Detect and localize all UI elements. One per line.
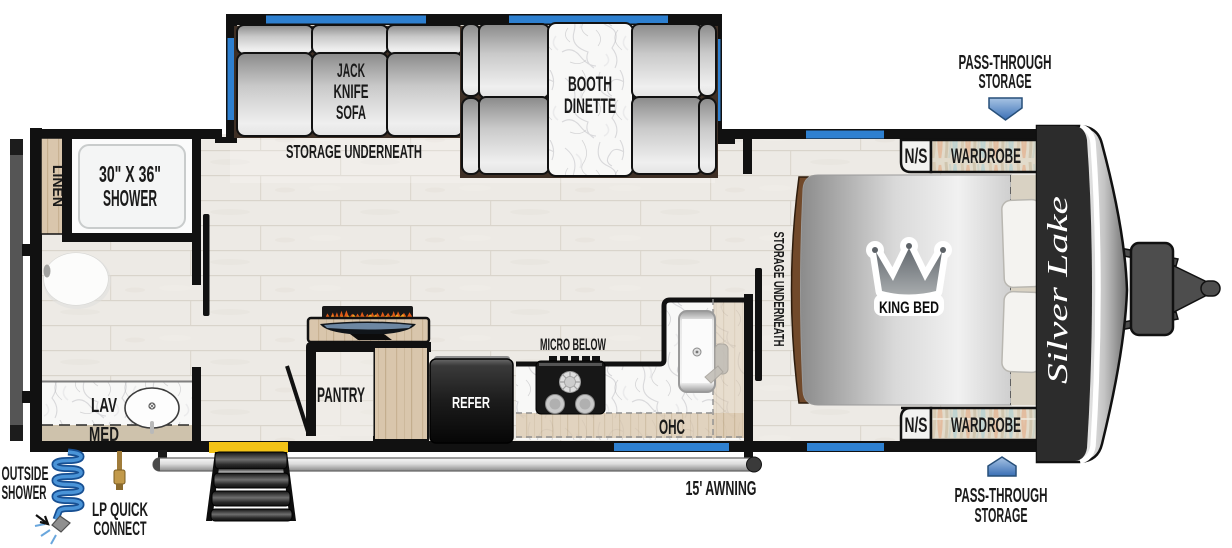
svg-text:Silver Lake: Silver Lake [1043,196,1074,384]
svg-text:JACK: JACK [337,61,365,82]
svg-text:STORAGE UNDERNEATH: STORAGE UNDERNEATH [286,142,422,162]
svg-text:LAV: LAV [91,395,117,417]
svg-text:WARDROBE: WARDROBE [951,145,1021,168]
svg-text:MICRO BELOW: MICRO BELOW [540,335,607,354]
svg-text:DINETTE: DINETTE [564,95,616,118]
svg-text:30" X 36": 30" X 36" [99,161,161,187]
svg-text:MED: MED [89,424,119,446]
svg-text:SHOWER: SHOWER [103,185,157,211]
svg-text:BOOTH: BOOTH [568,73,612,96]
svg-text:STORAGE UNDERNEATH: STORAGE UNDERNEATH [770,232,787,347]
svg-text:SOFA: SOFA [336,103,366,124]
svg-text:15' AWNING: 15' AWNING [686,478,757,500]
svg-text:OHC: OHC [659,416,685,439]
svg-text:REFER: REFER [452,395,490,412]
svg-text:KING BED: KING BED [879,298,939,317]
svg-text:WARDROBE: WARDROBE [951,414,1021,437]
svg-text:PANTRY: PANTRY [317,384,365,407]
svg-text:STORAGE: STORAGE [979,71,1032,93]
svg-text:PASS-THROUGH: PASS-THROUGH [955,485,1048,507]
svg-text:KNIFE: KNIFE [334,82,369,103]
svg-text:N/S: N/S [905,145,928,168]
svg-text:OUTSIDE: OUTSIDE [2,464,49,485]
svg-text:SHOWER: SHOWER [2,483,47,504]
svg-text:LP QUICK: LP QUICK [92,500,148,521]
svg-text:CONNECT: CONNECT [94,519,147,540]
svg-text:N/S: N/S [905,414,928,437]
svg-text:STORAGE: STORAGE [975,505,1028,527]
